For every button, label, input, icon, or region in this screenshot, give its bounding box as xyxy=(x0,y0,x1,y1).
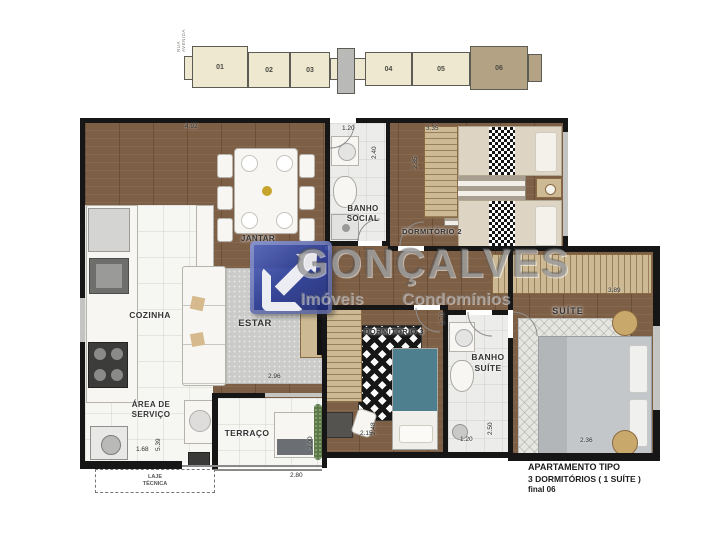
key-plan-unit-01: 01 xyxy=(192,46,248,88)
dimension-label: 4.92 xyxy=(185,123,198,130)
room-label-terraco: TERRAÇO xyxy=(216,428,278,439)
dimension-label: 2.40 xyxy=(371,146,378,159)
dimension-label: 1.20 xyxy=(460,436,473,443)
room-label-dormitorio-3: DORMITÓRIO 3 xyxy=(356,327,432,336)
dimension-label: 2.85 xyxy=(412,156,419,169)
dimension-label: 1.20 xyxy=(342,125,355,132)
room-label-banho-suite: BANHO SUÍTE xyxy=(462,352,514,373)
title-line-1: APARTAMENTO TIPO xyxy=(528,462,678,474)
key-plan-unit-06: 06 xyxy=(470,46,528,90)
dimension-label: 2.00 xyxy=(307,436,314,449)
unit-number: 02 xyxy=(265,67,273,74)
room-label-jantar: JANTAR xyxy=(228,234,288,244)
room-label-cozinha: COZINHA xyxy=(114,310,186,321)
dimension-label: 3.35 xyxy=(426,125,439,132)
key-plan-unit-05: 05 xyxy=(412,52,470,86)
key-plan-unit-03: 03 xyxy=(290,52,330,88)
unit-number: 03 xyxy=(306,67,314,74)
room-label-banho-social: BANHO SOCIAL xyxy=(340,204,386,224)
title-block: APARTAMENTO TIPO 3 DORMITÓRIOS ( 1 SUÍTE… xyxy=(528,462,678,495)
room-label-suite: SUÍTE xyxy=(544,306,592,317)
dimension-label: 2.48 xyxy=(370,422,377,435)
unit-number: 04 xyxy=(385,66,393,73)
unit-number: 01 xyxy=(216,64,224,71)
unit-number: 06 xyxy=(495,65,503,72)
dimension-label: 2.50 xyxy=(487,422,494,435)
room-label-area-servico: ÁREA DE SERVIÇO xyxy=(112,400,190,420)
dimension-label: 5.39 xyxy=(155,438,162,451)
dimension-label: 2.80 xyxy=(290,472,303,479)
dimension-label: 3.89 xyxy=(608,287,621,294)
title-line-2: 3 DORMITÓRIOS ( 1 SUÍTE ) xyxy=(528,474,678,485)
dimension-label: 1.68 xyxy=(136,446,149,453)
building-wing-notch-right xyxy=(528,54,542,82)
dimension-label: 2.36 xyxy=(580,437,593,444)
dimension-label: 2.96 xyxy=(268,373,281,380)
door-swing-arcs xyxy=(0,0,720,540)
room-label-estar: ESTAR xyxy=(222,318,288,330)
elevator-core xyxy=(337,48,355,94)
floor-plan-canvas: RUA AVENIDA 010203040506 xyxy=(0,0,720,540)
key-plan-unit-02: 02 xyxy=(248,52,290,88)
room-label-laje-tecnica: LAJE TÉCNICA xyxy=(143,474,167,487)
key-plan-unit-04: 04 xyxy=(365,52,412,86)
unit-number: 05 xyxy=(437,66,445,73)
laje-tecnica-box: LAJE TÉCNICA xyxy=(95,469,215,493)
title-line-3: final 06 xyxy=(528,485,678,495)
dimension-label: 1.70 xyxy=(439,312,446,325)
room-label-dormitorio-2: DORMITÓRIO 2 xyxy=(394,227,470,236)
street-label: RUA AVENIDA xyxy=(176,29,186,52)
